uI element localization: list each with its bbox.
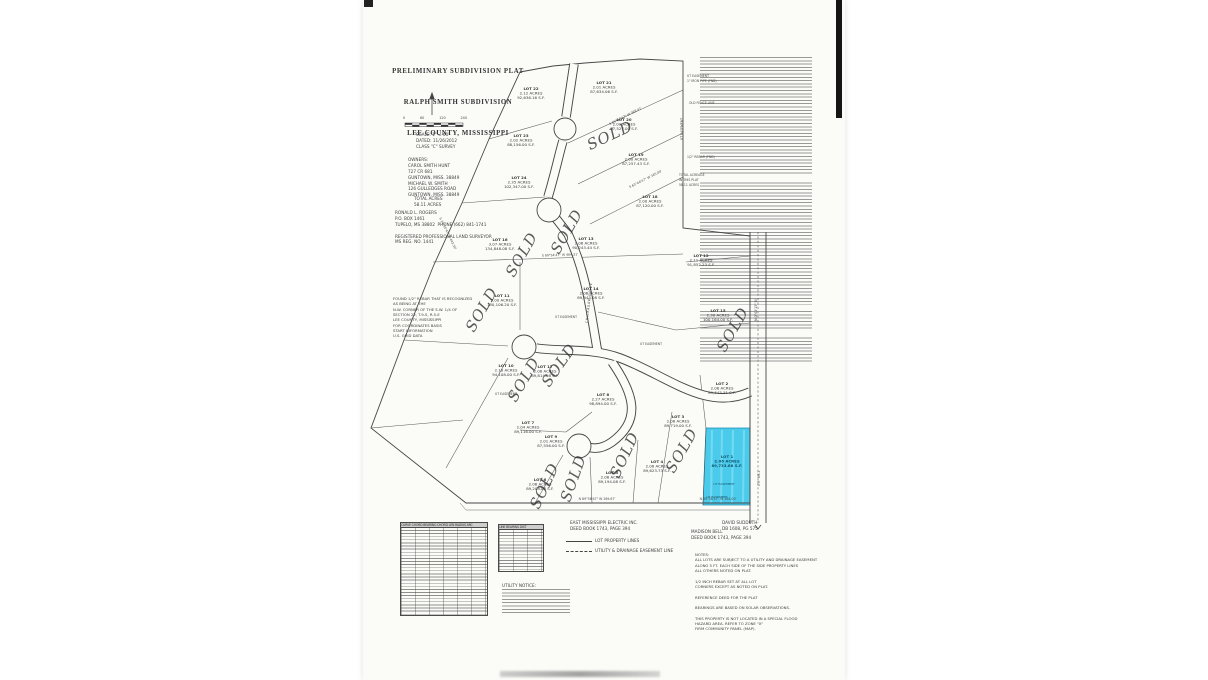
legend-easement-line: UTILITY & DRAINAGE EASEMENT LINE bbox=[566, 548, 673, 555]
lot-sqft-label: 89,545.51 S.F. bbox=[708, 390, 736, 395]
utility-notice-title: UTILITY NOTICE: bbox=[502, 583, 536, 589]
bearing-distance-label: N 89°58'47" W 269.67' bbox=[579, 497, 616, 501]
lot-sqft-label: 90,243.44 S.F. bbox=[572, 245, 600, 250]
boundary-annotation: 1" IRON PIPE (FND) bbox=[687, 79, 717, 83]
curve-table-rows bbox=[401, 527, 487, 615]
plat-map-drawing: .lotlbl{font:3.9px "DejaVu Sans",sans-se… bbox=[0, 0, 1208, 680]
legend-label: UTILITY & DRAINAGE EASEMENT LINE bbox=[595, 548, 673, 555]
lot-sqft-label: 88,156.00 S.F. bbox=[507, 142, 535, 147]
lot-sqft-label: 98,894.00 S.F. bbox=[589, 401, 617, 406]
adjoiner-madison-note: MADISON BELLDEED BOOK 1743, PAGE 394 bbox=[691, 529, 751, 541]
boundary-annotation: UT EASEMENT bbox=[680, 118, 684, 140]
sold-handwriting: SOLD bbox=[502, 229, 542, 280]
utility-company-note: EAST MISSISSIPPI ELECTRIC INC.DEED BOOK … bbox=[570, 520, 638, 532]
sold-handwriting: SOLD bbox=[462, 284, 502, 335]
road-name-label: CR 681 bbox=[757, 470, 761, 486]
boundary-annotation: UT EASEMENT bbox=[640, 342, 662, 346]
lot-sqft-label: 89,116.00 S.F. bbox=[514, 429, 542, 434]
highlight-easement-label: UT EASEMENT bbox=[713, 482, 734, 486]
boundary-annotation: 58.11 ACRES bbox=[679, 183, 699, 187]
note-line: ALL LOTS ARE SUBJECT TO A UTILITY AND DR… bbox=[695, 557, 817, 562]
utility-notice-microtext bbox=[502, 589, 570, 615]
utility-co-line: EAST MISSISSIPPI ELECTRIC INC. bbox=[570, 520, 638, 526]
lot-sqft-label: 102,347.00 S.F. bbox=[504, 184, 534, 189]
adjoiner-line: DAVID SUDDUTH bbox=[722, 520, 758, 526]
line-table-rows bbox=[499, 529, 543, 571]
boundary-annotation: IN THIS PLAT bbox=[679, 178, 699, 182]
legend-label: LOT PROPERTY LINES bbox=[595, 538, 639, 545]
boundary-annotation: UT EASEMENT bbox=[495, 392, 517, 396]
lot-sqft-label: 91,852.23 S.F. bbox=[687, 262, 715, 267]
bearing-distance-label: N 89°58'47" W 264.00' bbox=[700, 497, 737, 501]
line-data-table: LINE BEARING DIST bbox=[498, 524, 544, 572]
boundary-annotation: TOTAL ACREAGE bbox=[678, 173, 705, 177]
adjoiner-line: DEED BOOK 1743, PAGE 394 bbox=[691, 535, 751, 541]
sold-handwriting: SOLD bbox=[662, 425, 702, 476]
lot-sqft-label: 92,636.16 S.F. bbox=[517, 95, 545, 100]
legend-property-line: LOT PROPERTY LINES bbox=[566, 538, 673, 545]
lot-sqft-label: 87,634.06 S.F. bbox=[590, 89, 618, 94]
curve-data-table: CURVE CHORD BEARING CHORD LEN RADIUS ARC bbox=[400, 522, 488, 616]
north-arrow bbox=[430, 93, 434, 115]
bearing-distance-label: N 0°01'13" W bbox=[754, 298, 758, 320]
highlight-lot-label: 89,733.88 S.F. bbox=[711, 463, 743, 468]
lot-sqft-label: 87,120.00 S.F. bbox=[636, 203, 664, 208]
boundary-annotation: OLD FENCE LINE bbox=[689, 101, 715, 105]
lot-sqft-label: 87,257.43 S.F. bbox=[622, 161, 650, 166]
map-legend: LOT PROPERTY LINES UTILITY & DRAINAGE EA… bbox=[566, 538, 673, 557]
boundary-annotation: UT EASEMENT bbox=[687, 74, 709, 78]
bearing-distance-label: S 24°10'47" E 443.30' bbox=[438, 217, 457, 251]
bearing-distance-label: S 63°44'47" W 345.00' bbox=[628, 169, 662, 189]
plat-notes-block: NOTES:ALL LOTS ARE SUBJECT TO A UTILITY … bbox=[695, 552, 817, 632]
boundary-annotation: UT EASEMENT bbox=[555, 315, 577, 319]
note-line: FIRM COMMUNITY PANEL (MAP). bbox=[695, 626, 817, 631]
scanned-plat-page: PRELIMINARY SUBDIVISION PLAT RALPH SMITH… bbox=[0, 0, 1208, 680]
solid-line-swatch bbox=[566, 541, 592, 542]
lot-sqft-label: 87,556.00 S.F. bbox=[537, 443, 565, 448]
dashed-line-swatch bbox=[566, 551, 592, 552]
lot-sqft-label: 134,848.08 S.F. bbox=[485, 246, 515, 251]
boundary-annotation: 1/2" REBAR (FND) bbox=[687, 155, 715, 159]
scale-bar bbox=[405, 123, 463, 127]
utility-co-line: DEED BOOK 1743, PAGE 394 bbox=[570, 526, 638, 532]
